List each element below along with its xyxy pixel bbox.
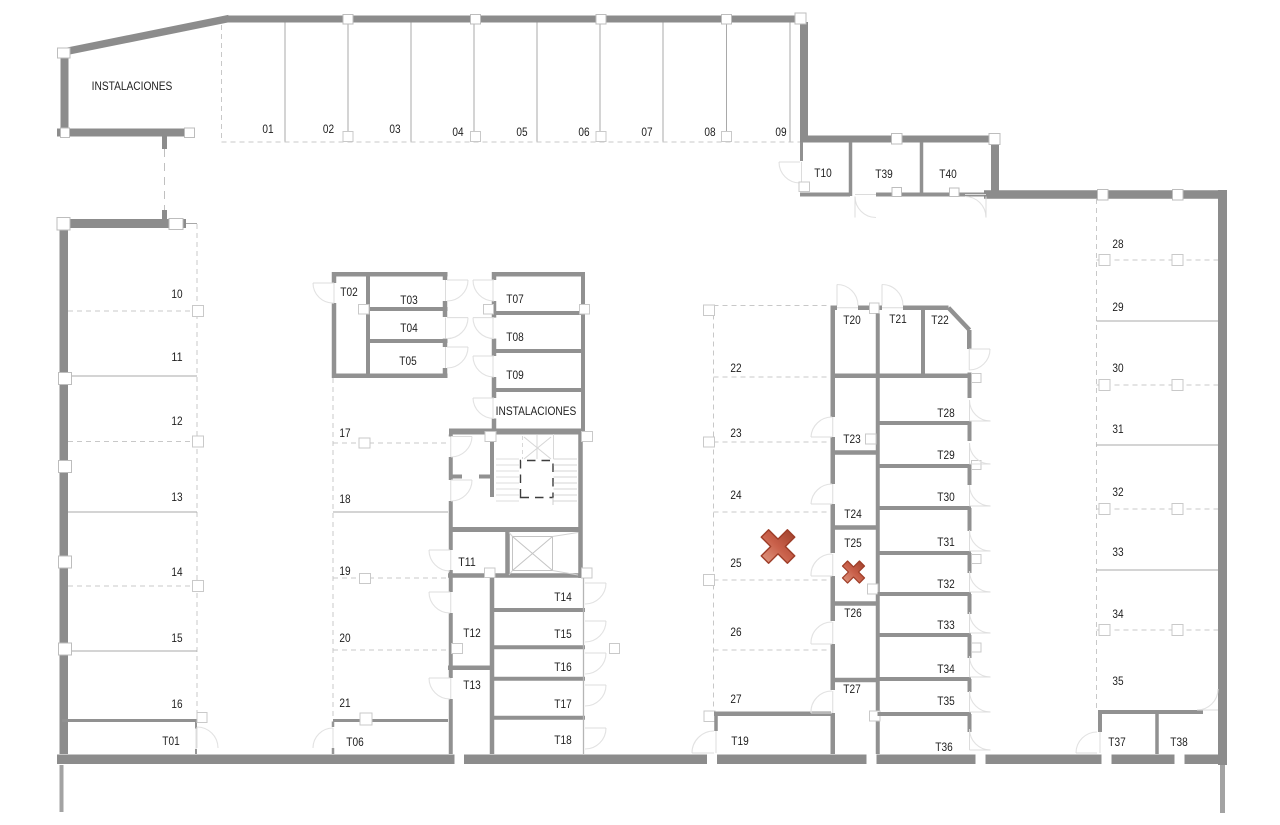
svg-text:01: 01 xyxy=(262,122,273,136)
svg-text:11: 11 xyxy=(171,350,182,364)
svg-text:35: 35 xyxy=(1112,674,1123,688)
svg-text:T31: T31 xyxy=(937,535,955,549)
svg-text:T29: T29 xyxy=(937,448,955,462)
svg-text:31: 31 xyxy=(1112,422,1123,436)
svg-text:02: 02 xyxy=(323,122,334,136)
svg-text:T26: T26 xyxy=(844,606,862,620)
svg-text:T11: T11 xyxy=(458,555,476,569)
svg-text:26: 26 xyxy=(730,625,741,639)
svg-text:T36: T36 xyxy=(935,740,953,754)
svg-text:29: 29 xyxy=(1112,300,1123,314)
svg-text:T07: T07 xyxy=(506,292,524,306)
svg-text:T38: T38 xyxy=(1170,735,1188,749)
svg-text:T35: T35 xyxy=(937,694,955,708)
svg-text:22: 22 xyxy=(730,361,741,375)
svg-text:12: 12 xyxy=(171,414,182,428)
svg-text:07: 07 xyxy=(641,125,652,139)
svg-text:T40: T40 xyxy=(939,167,957,181)
svg-text:T10: T10 xyxy=(814,166,832,180)
svg-text:T34: T34 xyxy=(937,662,955,676)
svg-text:24: 24 xyxy=(730,488,741,502)
svg-text:18: 18 xyxy=(339,492,350,506)
svg-text:T17: T17 xyxy=(554,697,572,711)
svg-text:T21: T21 xyxy=(889,312,907,326)
svg-text:T24: T24 xyxy=(844,507,862,521)
svg-text:05: 05 xyxy=(516,125,527,139)
svg-text:28: 28 xyxy=(1112,237,1123,251)
svg-text:32: 32 xyxy=(1112,485,1123,499)
svg-text:INSTALACIONES: INSTALACIONES xyxy=(92,79,173,93)
svg-text:T05: T05 xyxy=(399,354,417,368)
svg-text:T09: T09 xyxy=(506,368,524,382)
svg-text:INSTALACIONES: INSTALACIONES xyxy=(496,404,577,418)
svg-text:T20: T20 xyxy=(843,313,861,327)
svg-text:T28: T28 xyxy=(937,406,955,420)
svg-text:T22: T22 xyxy=(931,313,949,327)
svg-text:25: 25 xyxy=(730,556,741,570)
svg-text:T39: T39 xyxy=(875,167,893,181)
svg-text:T25: T25 xyxy=(844,536,862,550)
svg-text:06: 06 xyxy=(578,125,589,139)
svg-text:T02: T02 xyxy=(340,285,358,299)
svg-text:21: 21 xyxy=(339,696,350,710)
svg-text:T18: T18 xyxy=(554,733,572,747)
svg-text:34: 34 xyxy=(1112,607,1123,621)
svg-text:T33: T33 xyxy=(937,618,955,632)
svg-text:T32: T32 xyxy=(937,577,955,591)
svg-text:04: 04 xyxy=(452,125,463,139)
svg-text:16: 16 xyxy=(171,697,182,711)
svg-text:09: 09 xyxy=(775,125,786,139)
svg-text:14: 14 xyxy=(171,565,182,579)
svg-text:T27: T27 xyxy=(843,682,861,696)
svg-text:08: 08 xyxy=(704,125,715,139)
svg-text:T13: T13 xyxy=(463,678,481,692)
svg-text:T23: T23 xyxy=(843,432,861,446)
svg-text:T01: T01 xyxy=(162,734,180,748)
svg-text:20: 20 xyxy=(339,631,350,645)
svg-text:T30: T30 xyxy=(937,490,955,504)
svg-text:30: 30 xyxy=(1112,361,1123,375)
svg-text:T08: T08 xyxy=(506,330,524,344)
svg-text:T16: T16 xyxy=(554,660,572,674)
svg-text:19: 19 xyxy=(339,564,350,578)
svg-text:17: 17 xyxy=(339,426,350,440)
svg-text:T06: T06 xyxy=(346,735,364,749)
svg-text:T19: T19 xyxy=(731,734,749,748)
svg-text:13: 13 xyxy=(171,490,182,504)
svg-text:T15: T15 xyxy=(554,627,572,641)
svg-text:T14: T14 xyxy=(554,590,572,604)
svg-text:T12: T12 xyxy=(463,626,481,640)
svg-text:27: 27 xyxy=(730,692,741,706)
svg-text:23: 23 xyxy=(730,426,741,440)
svg-text:T04: T04 xyxy=(400,321,418,335)
svg-text:10: 10 xyxy=(171,287,182,301)
svg-text:15: 15 xyxy=(171,631,182,645)
svg-text:03: 03 xyxy=(389,122,400,136)
svg-text:T37: T37 xyxy=(1108,735,1126,749)
svg-text:T03: T03 xyxy=(400,293,418,307)
svg-text:33: 33 xyxy=(1112,545,1123,559)
